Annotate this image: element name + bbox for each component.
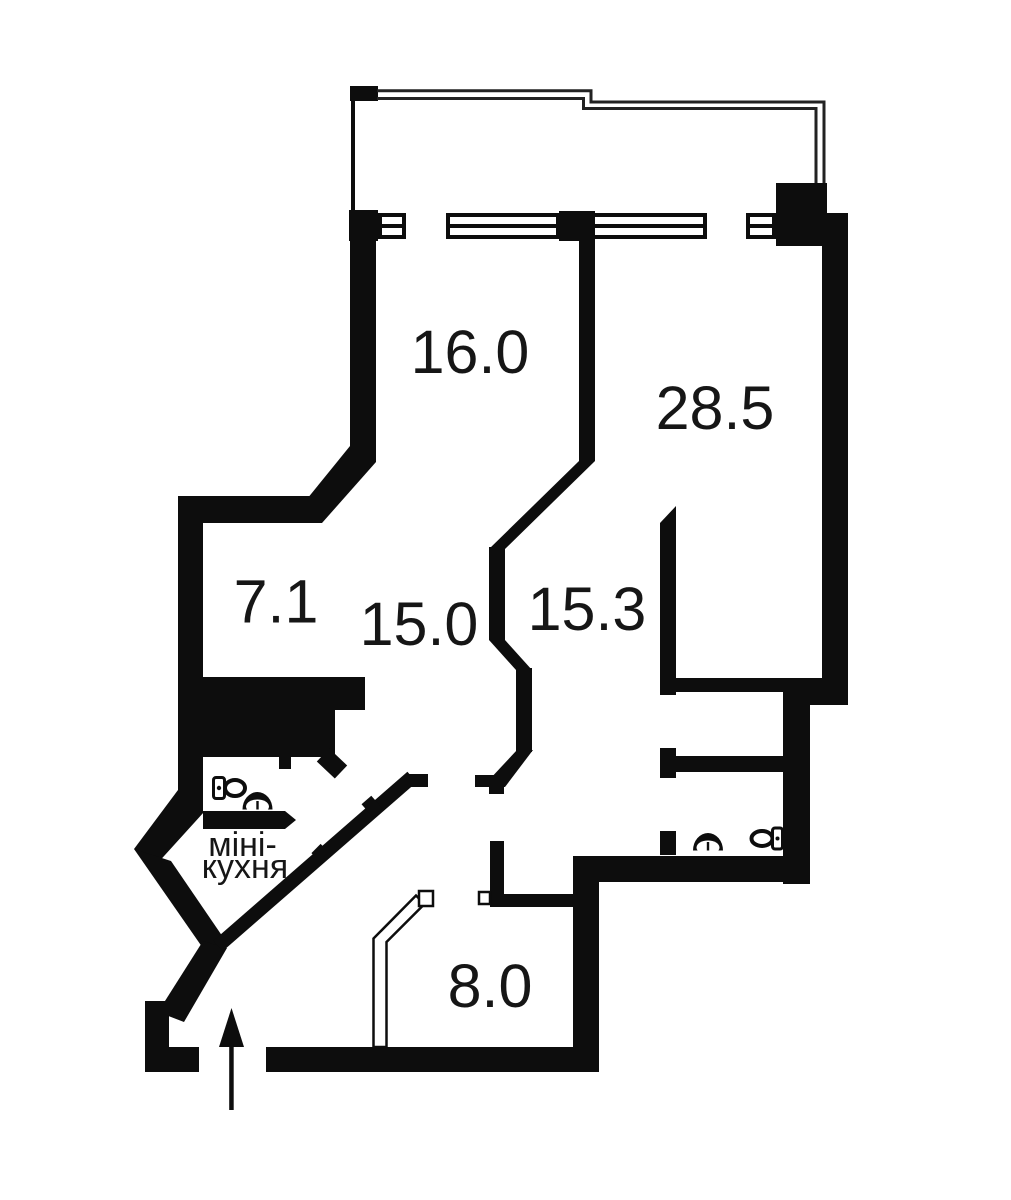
svg-text:15.3: 15.3	[528, 575, 647, 643]
svg-text:28.5: 28.5	[656, 374, 775, 442]
svg-text:7.1: 7.1	[234, 568, 319, 636]
svg-text:16.0: 16.0	[411, 318, 530, 386]
svg-text:15.0: 15.0	[360, 590, 479, 658]
svg-text:кухня: кухня	[202, 848, 288, 886]
svg-text:8.0: 8.0	[448, 952, 533, 1020]
